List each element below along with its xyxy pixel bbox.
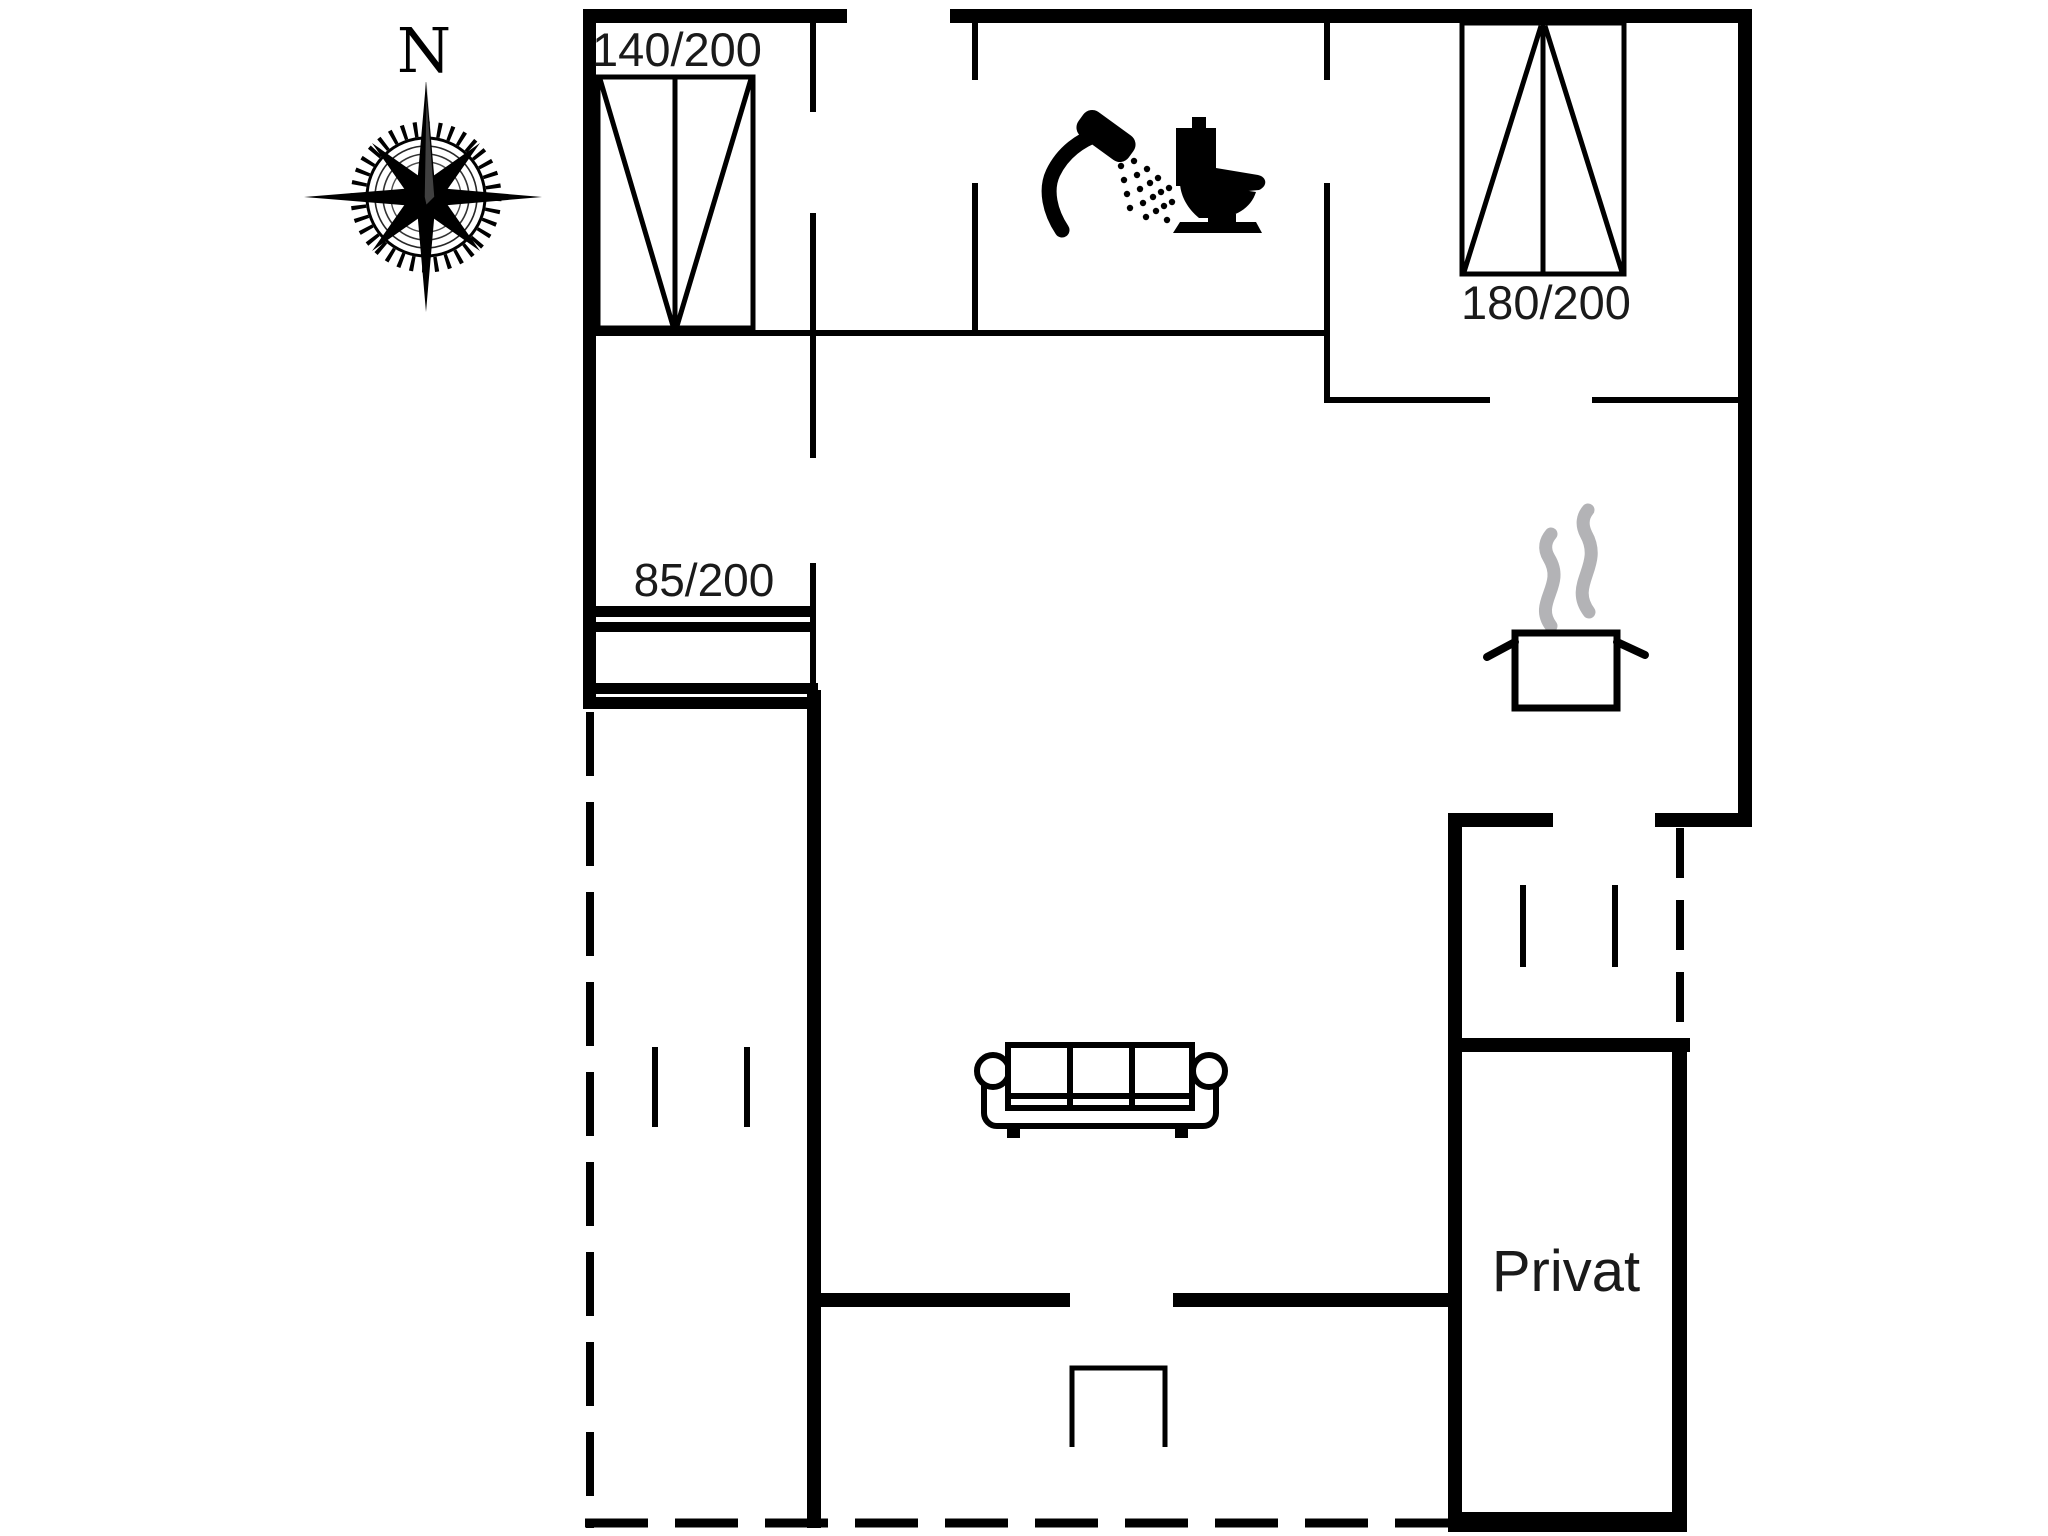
compass-north-label: N [397, 14, 451, 87]
compass-rose-icon: N [304, 14, 542, 312]
terrace-step-icon [1072, 1368, 1165, 1447]
entry-door-size-label: 85/200 [634, 554, 775, 606]
floor-plan: N [0, 0, 2048, 1536]
steam-right [1582, 510, 1591, 612]
shower-spray-dots [1118, 158, 1175, 223]
toilet-icon [1173, 117, 1265, 233]
cooking-pot-icon [1487, 510, 1645, 708]
bed-large-size-label: 180/200 [1461, 276, 1631, 329]
double-bed-large-icon [1462, 23, 1624, 274]
bed-small-size-label: 140/200 [592, 23, 762, 76]
private-room-label: Privat [1492, 1239, 1640, 1304]
entry-door-threshold [595, 606, 814, 632]
double-bed-small-icon [598, 77, 753, 328]
steam-left [1545, 534, 1554, 626]
shower-icon [1049, 106, 1175, 230]
sofa-icon [977, 1045, 1225, 1135]
